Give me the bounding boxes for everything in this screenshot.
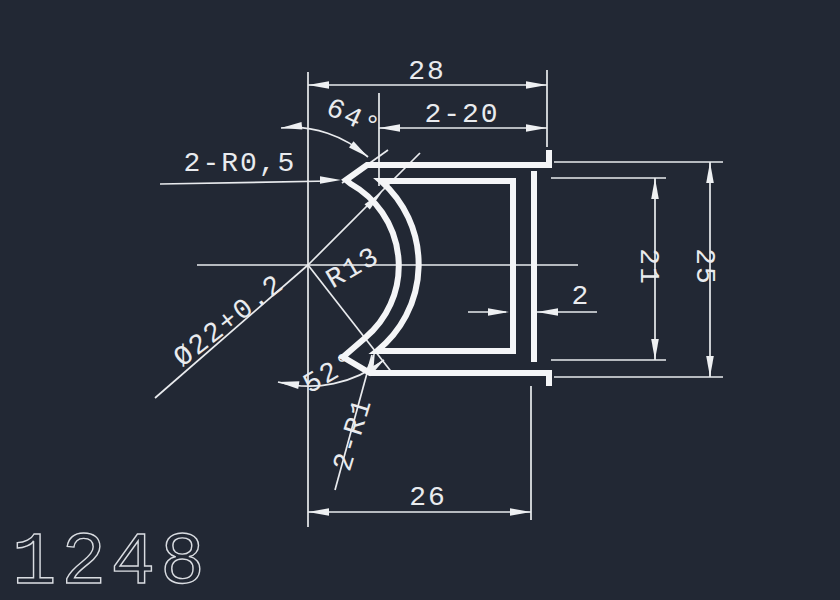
dim-text-flange-length: 2-20 xyxy=(424,99,499,130)
leader-text-bore: Ø22+0.2 xyxy=(168,268,291,373)
leader-bore[interactable]: Ø22+0.2 xyxy=(155,265,308,398)
dim-overall-width[interactable]: 28 xyxy=(308,56,547,89)
leader-outer-radius[interactable]: R13 xyxy=(308,153,420,296)
arrowhead-down-icon xyxy=(706,356,714,377)
arrowhead-down-icon xyxy=(651,339,659,360)
arrowhead-left-icon xyxy=(537,308,558,316)
dim-bottom-width[interactable]: 26 xyxy=(308,482,531,516)
part-number: 1248 xyxy=(12,521,210,600)
dim-inner-height[interactable]: 21 xyxy=(633,178,664,360)
dim-flange-length[interactable]: 2-20 xyxy=(379,99,547,132)
dim-text-top-angle: 64° xyxy=(321,92,385,144)
leader-text-top-lip-radius: 2-R0,5 xyxy=(184,148,297,179)
dim-overall-height[interactable]: 25 xyxy=(689,162,720,377)
dim-text-inner-height: 21 xyxy=(633,248,664,286)
leader-line xyxy=(160,181,330,184)
leader-text-outer-radius: R13 xyxy=(321,241,385,296)
arrowhead-right-icon xyxy=(349,141,368,157)
arrowhead-right-icon xyxy=(526,124,547,132)
leader-top-lip-radius[interactable]: 2-R0,5 xyxy=(160,148,341,184)
cad-drawing-canvas: 28 2-20 26 21 25 2 2-R0,5 xyxy=(0,0,840,600)
arrowhead-up-icon xyxy=(706,162,714,183)
arrowhead-left-icon xyxy=(379,124,400,132)
drawing-sheet: 28 2-20 26 21 25 2 2-R0,5 xyxy=(0,0,840,600)
arrowhead-right-icon xyxy=(510,508,531,516)
arrowhead-right-icon xyxy=(526,81,547,89)
dim-text-wall-thickness: 2 xyxy=(572,281,591,312)
arrowhead-icon xyxy=(320,176,341,184)
arrowhead-left-icon xyxy=(308,81,329,89)
dim-text-overall-height: 25 xyxy=(689,248,720,286)
arrowhead-right-icon xyxy=(488,308,509,316)
dim-top-angle[interactable]: 64° xyxy=(281,92,388,183)
leader-text-bottom-lip-radius: 2-R1 xyxy=(328,394,380,475)
dim-text-overall-width: 28 xyxy=(408,56,446,87)
arrowhead-left-icon xyxy=(308,508,329,516)
arrowhead-left-icon xyxy=(278,381,299,389)
title-block: 1248 xyxy=(12,521,210,600)
arrowhead-up-icon xyxy=(651,178,659,199)
extension-lines[interactable] xyxy=(379,70,723,520)
dim-text-bottom-width: 26 xyxy=(409,482,447,513)
